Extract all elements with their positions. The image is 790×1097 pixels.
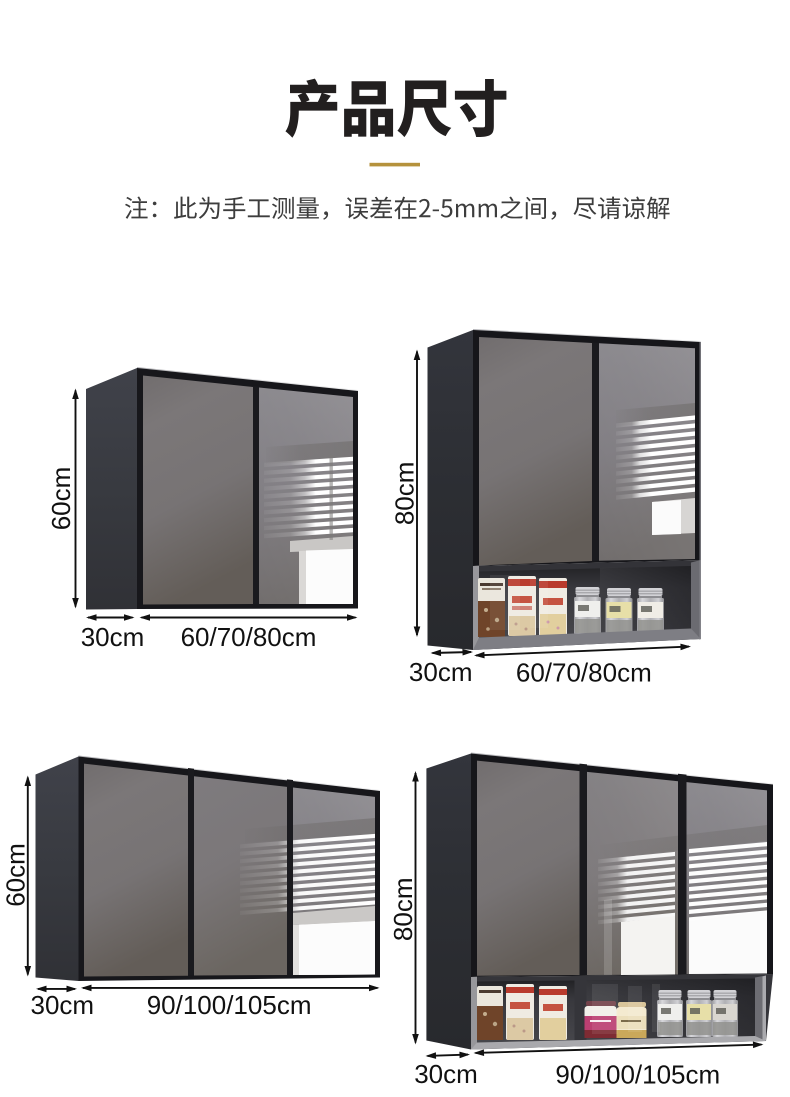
svg-text:60/70/80cm: 60/70/80cm [181,622,317,652]
svg-text:60/70/80cm: 60/70/80cm [516,658,652,688]
svg-text:30cm: 30cm [414,1059,478,1089]
svg-text:60cm: 60cm [0,843,30,907]
svg-text:60cm: 60cm [46,467,76,531]
svg-text:80cm: 80cm [390,462,420,526]
svg-text:30cm: 30cm [31,990,95,1020]
svg-text:80cm: 80cm [388,878,418,942]
svg-text:90/100/105cm: 90/100/105cm [147,990,312,1020]
svg-text:30cm: 30cm [409,657,473,687]
svg-text:30cm: 30cm [81,622,145,652]
svg-text:90/100/105cm: 90/100/105cm [555,1060,720,1090]
